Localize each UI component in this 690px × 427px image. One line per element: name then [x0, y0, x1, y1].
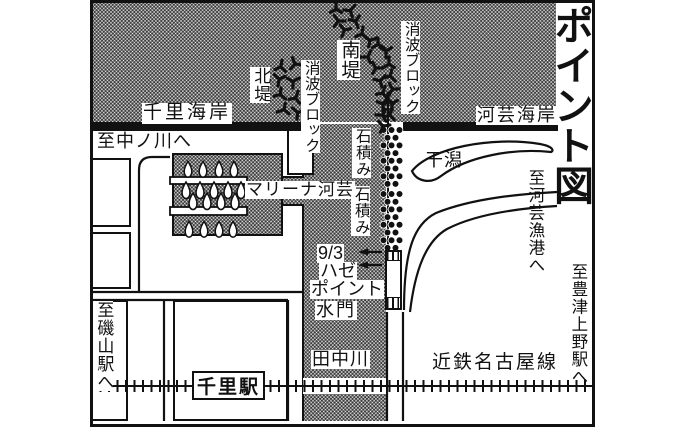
tetrapod-blocks — [273, 2, 400, 132]
quay-hatch-top — [387, 252, 400, 261]
stone-jetty-label-1: 石積み — [352, 128, 371, 178]
to-isoyama-label: 至磯山駅へ — [93, 301, 113, 391]
marina-label: マリーナ河芸 — [245, 181, 355, 199]
tetrapod-north-label: 消波ブロック — [301, 60, 320, 153]
fishing-point-map: 千里駅 千里海岸 河芸海岸 至中ノ川へ 北堤 消波ブロック 南堤 消波ブロック … — [0, 0, 690, 427]
to-nakanogawa-label: 至中ノ川へ — [96, 132, 193, 151]
point-arrows — [358, 249, 382, 269]
map-title: ポイント図 — [549, 5, 591, 205]
tetrapod-south-label: 消波ブロック — [401, 21, 420, 114]
to-kawage-port-label: 至河芸漁港へ — [524, 169, 544, 274]
railway-line — [93, 380, 592, 392]
tanaka-river-label: 田中川 — [311, 350, 370, 369]
stone-jetty — [380, 127, 403, 252]
north-breakwater-label: 北堤 — [250, 67, 270, 103]
kawage-coast-label: 河芸海岸 — [476, 106, 558, 125]
south-breakwater-label: 南堤 — [337, 40, 360, 80]
fishing-point-label-3: ポイント — [310, 280, 384, 299]
quay-wall — [385, 250, 402, 310]
to-toyotsu-ueno-label: 至豊津上野駅へ — [567, 263, 587, 386]
senri-station-box: 千里駅 — [192, 371, 265, 400]
marina-boats — [182, 161, 245, 237]
senri-station-label: 千里駅 — [197, 372, 260, 399]
kintetsu-line-label: 近鉄名古屋線 — [431, 353, 559, 374]
senri-coast-label: 千里海岸 — [142, 103, 232, 124]
tidal-flat-label: 干潟 — [424, 151, 464, 170]
sluice-gate-hatch — [387, 297, 400, 308]
sluice-gate-label: 水門 — [315, 301, 357, 320]
